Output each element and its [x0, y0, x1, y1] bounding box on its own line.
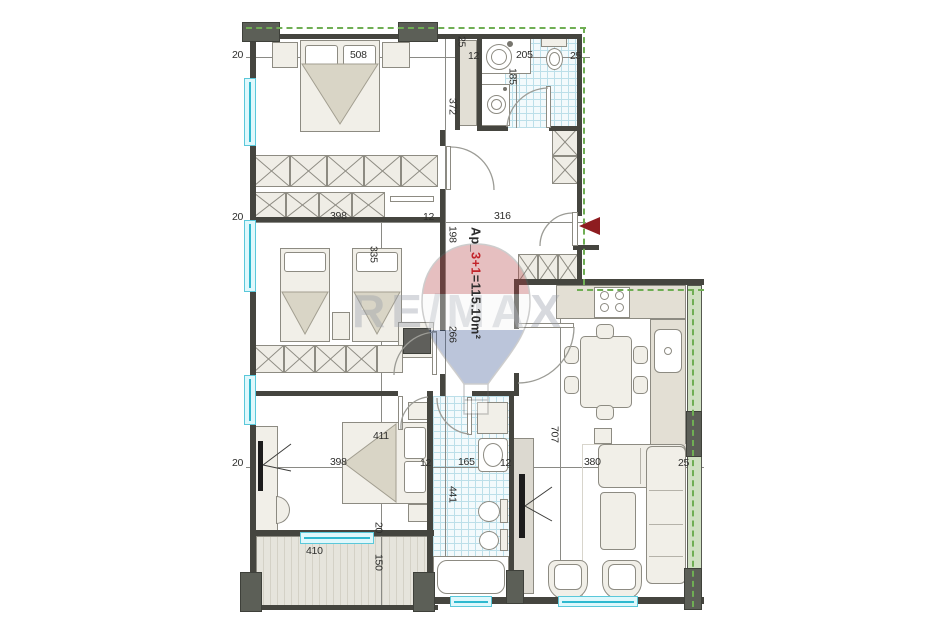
burner [600, 303, 609, 312]
wardrobe-cell [253, 345, 284, 373]
dining-chair [633, 346, 648, 364]
closet-cell [518, 254, 538, 282]
dim-label: 205 [516, 50, 533, 61]
dim-label: 372 [447, 98, 458, 115]
closet-cell [538, 254, 558, 282]
dim-label: 335 [368, 246, 379, 263]
apartment-label-prefix: Ap_ [469, 227, 483, 252]
bidet-tank [500, 529, 508, 551]
dim-label: 316 [494, 211, 511, 222]
dim-label: 410 [306, 546, 323, 557]
wardrobe-cell [286, 192, 319, 218]
entrance-door-leaf [572, 212, 578, 246]
window-glass-line [304, 537, 370, 539]
column [506, 570, 524, 604]
boundary-dash-top [246, 27, 586, 29]
dim-label: 20 [232, 50, 243, 61]
dim-label: 165 [458, 457, 475, 468]
dim-label: 707 [549, 426, 560, 443]
armchair-seat [554, 564, 582, 590]
dim-label: 20 [232, 458, 243, 469]
sofa-cushion-line [649, 490, 683, 491]
wall-hall-left-c [440, 374, 445, 396]
window-glass-line [249, 82, 251, 142]
balcony-deck [256, 536, 428, 606]
wardrobe-cell [401, 155, 438, 187]
dim-label: 12 [423, 212, 434, 223]
tv-icon [519, 474, 525, 538]
dim-label: 508 [350, 50, 367, 61]
door-leaf [398, 396, 403, 430]
window-glass-line [562, 601, 634, 603]
washer-knob [503, 87, 507, 91]
dim-label: 12 [420, 458, 431, 469]
dining-chair [633, 376, 648, 394]
closet-cell [558, 254, 578, 282]
armchair-seat [608, 564, 636, 590]
wall-bed1-right [455, 34, 460, 130]
toilet-tank [500, 499, 508, 523]
dining-chair [596, 405, 614, 420]
window-glass-line [249, 379, 251, 421]
dim-label: 266 [447, 326, 458, 343]
toilet-icon [478, 501, 500, 522]
dim-label: 25 [456, 36, 467, 47]
dim-label: 398 [330, 211, 347, 222]
coffee-table [600, 492, 636, 550]
pillow [404, 427, 426, 459]
apartment-label-type: 3+1 [469, 252, 483, 275]
pillow [284, 252, 326, 272]
dining-chair [564, 376, 579, 394]
stove-icon [594, 287, 630, 318]
wardrobe-cell [315, 345, 346, 373]
dining-table [580, 336, 632, 408]
boundary-dash-right-upper [583, 27, 585, 285]
door-leaf [546, 86, 551, 128]
door-leaf [467, 397, 472, 435]
wardrobe-cell [284, 345, 315, 373]
wardrobe-cell [327, 155, 364, 187]
dim-line-mid [246, 222, 586, 223]
wardrobe-cell [352, 192, 385, 218]
dim-label: 411 [373, 431, 389, 442]
dim-label: 12 [500, 458, 511, 469]
wall-bed2-bed3-a [250, 391, 398, 396]
column [240, 572, 262, 612]
dim-label: 185 [507, 68, 518, 85]
column [242, 22, 280, 42]
bath2-cabinet [477, 402, 508, 434]
apartment-label-area: =115.10m² [469, 275, 483, 340]
wardrobe-cell [346, 345, 377, 373]
dim-label: 198 [447, 226, 458, 243]
desk-stool [276, 496, 290, 524]
closet-cell [552, 128, 578, 156]
dining-chair [596, 324, 614, 339]
pillow [305, 45, 338, 66]
sofa-cushion-line [649, 524, 683, 525]
open-door-leaf [390, 196, 434, 202]
boundary-dash-right-lower [692, 289, 694, 607]
column [686, 411, 702, 457]
watermark-text: RE/MAX [352, 284, 567, 338]
wall-bath1-bottom-a [477, 126, 508, 131]
dim-label: 150 [373, 554, 384, 571]
dim-label: 441 [447, 486, 458, 503]
column [398, 22, 438, 42]
dim-label: 25 [570, 51, 581, 62]
boundary-dash-kitchen-top [577, 289, 704, 291]
wall-bath1-left [477, 34, 482, 130]
wardrobe-end [377, 345, 403, 373]
wardrobe-cell [364, 155, 401, 187]
faucet-icon [507, 41, 513, 47]
toilet-tank [541, 38, 567, 47]
bidet-icon [479, 531, 499, 550]
wall-bed1-bed2 [250, 217, 445, 222]
dim-label: 25 [678, 458, 689, 469]
closet-cell [552, 156, 578, 184]
column [413, 572, 435, 612]
burner [600, 291, 609, 300]
window-glass-line [249, 224, 251, 288]
nightstand [382, 42, 410, 68]
door-leaf [446, 146, 451, 190]
sofa-cushion-line [649, 556, 683, 557]
sofa-cushion-line [640, 448, 641, 484]
wardrobe-cell [290, 155, 327, 187]
dim-label: 380 [584, 457, 601, 468]
side-table [594, 428, 612, 444]
wall-hall-left-a [440, 130, 445, 146]
dim-label: 12 [468, 51, 479, 62]
dim-label: 20 [373, 522, 384, 533]
wall-kitchen-left-b [514, 373, 519, 396]
wall-bed2-bed3-b [472, 391, 514, 396]
window-glass-line [454, 601, 488, 603]
toilet-bowl-inner [549, 52, 560, 66]
bedside-table [332, 312, 350, 340]
wardrobe-cell [253, 192, 286, 218]
dim-label: 20 [232, 212, 243, 223]
burner [615, 291, 624, 300]
faucet-icon [664, 347, 672, 355]
wall-balcony-bottom [250, 605, 438, 610]
dining-chair [564, 346, 579, 364]
apartment-label: Ap_3+1=115.10m² [469, 227, 482, 339]
dim-label: 398 [330, 457, 347, 468]
bathtub-inner [437, 560, 505, 594]
wall-bath2-right [509, 391, 514, 597]
washer-drum-inner [491, 99, 502, 110]
burner [615, 303, 624, 312]
nightstand [272, 42, 298, 68]
sink-basin-inner [491, 49, 507, 65]
wardrobe-cell [253, 155, 290, 187]
wall-bath1-bottom-b [549, 126, 582, 131]
floorplan-canvas: RE/MAX Ap_3+1=115.10m² 20 508 12 205 25 … [0, 0, 950, 634]
tv-icon [258, 441, 263, 491]
